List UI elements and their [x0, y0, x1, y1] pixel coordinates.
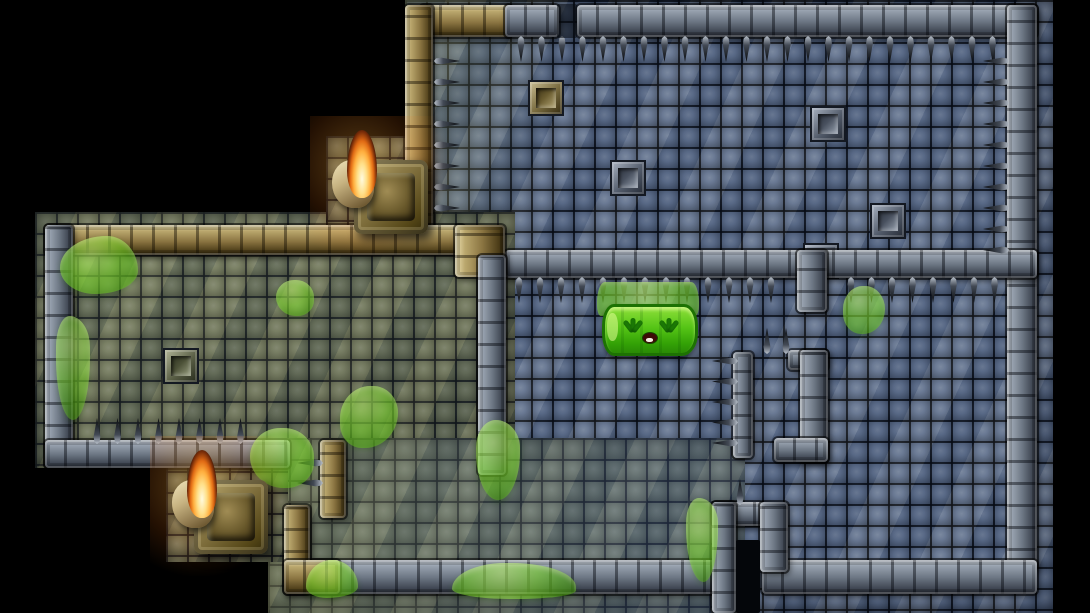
- dungeon-wall: [320, 440, 346, 518]
- spike-left-icon: [983, 77, 1009, 87]
- spike-strip-left: [983, 56, 1009, 257]
- spike-down-icon: [535, 277, 545, 303]
- torch-pedestal[interactable]: [172, 458, 268, 554]
- spike-left-icon: [983, 140, 1009, 150]
- spike-down-icon: [887, 277, 897, 303]
- spike-right-icon: [434, 77, 460, 87]
- spike-down-icon: [639, 36, 649, 62]
- floor-ornament-tile: [610, 160, 646, 196]
- spike-down-icon: [680, 36, 690, 62]
- torch-pedestal[interactable]: [332, 138, 428, 234]
- spike-down-icon: [660, 36, 670, 62]
- spike-down-icon: [990, 277, 1000, 303]
- spike-strip-down: [516, 36, 1000, 62]
- spike-left-icon: [712, 438, 738, 448]
- spike-down-icon: [783, 36, 793, 62]
- spike-down-icon: [762, 36, 772, 62]
- spike-up-icon: [92, 418, 102, 444]
- dungeon-wall: [797, 250, 827, 312]
- spike-down-icon: [906, 36, 916, 62]
- dungeon-wall: [760, 502, 788, 572]
- dungeon-wall: [577, 5, 1037, 37]
- spike-down-icon: [598, 36, 608, 62]
- spike-left-icon: [983, 182, 1009, 192]
- spike-down-icon: [537, 36, 547, 62]
- spike-up-icon: [781, 328, 791, 354]
- spike-down-icon: [803, 36, 813, 62]
- slime-eye-left: [620, 315, 646, 332]
- slime-body: [602, 304, 698, 356]
- spike-left-icon: [983, 119, 1009, 129]
- spike-down-icon: [908, 277, 918, 303]
- spike-down-icon: [928, 277, 938, 303]
- spike-down-icon: [577, 277, 587, 303]
- spike-left-icon: [983, 56, 1009, 66]
- dungeon-wall: [505, 250, 1037, 278]
- spike-down-icon: [556, 277, 566, 303]
- spike-down-icon: [949, 277, 959, 303]
- spike-left-icon: [983, 203, 1009, 213]
- dungeon-wall: [1007, 5, 1037, 570]
- spike-down-icon: [514, 277, 524, 303]
- dungeon-wall: [774, 438, 828, 462]
- floor-ornament-tile: [163, 348, 199, 384]
- spike-down-icon: [766, 277, 776, 303]
- spike-down-icon: [824, 36, 834, 62]
- spike-down-icon: [721, 36, 731, 62]
- spike-up-icon: [735, 479, 745, 505]
- spike-up-icon: [133, 418, 143, 444]
- spike-down-icon: [619, 36, 629, 62]
- spike-down-icon: [724, 277, 734, 303]
- spike-left-icon: [712, 418, 738, 428]
- spike-down-icon: [578, 36, 588, 62]
- floor-ornament-tile: [870, 203, 906, 239]
- spike-right-icon: [434, 56, 460, 66]
- spike-left-icon: [983, 224, 1009, 234]
- spike-left-icon: [712, 377, 738, 387]
- spike-left-icon: [983, 161, 1009, 171]
- dungeon-wall: [762, 560, 1037, 594]
- spike-left-icon: [983, 98, 1009, 108]
- spike-down-icon: [969, 277, 979, 303]
- spike-down-icon: [865, 36, 875, 62]
- slime-eye-right: [656, 315, 682, 332]
- spike-strip-up: [762, 328, 793, 354]
- spike-right-icon: [434, 98, 460, 108]
- spike-down-icon: [926, 36, 936, 62]
- spike-down-icon: [947, 36, 957, 62]
- spike-left-icon: [983, 245, 1009, 255]
- spike-down-icon: [701, 36, 711, 62]
- dungeon-wall: [505, 5, 559, 37]
- spike-down-icon: [557, 36, 567, 62]
- floor-ornament-tile: [528, 80, 564, 116]
- spike-up-icon: [762, 328, 772, 354]
- spike-left-icon: [712, 356, 738, 366]
- spike-down-icon: [885, 36, 895, 62]
- slime-mouth: [642, 332, 658, 344]
- spike-down-icon: [516, 36, 526, 62]
- spike-strip-left: [712, 356, 738, 450]
- spike-up-icon: [113, 418, 123, 444]
- spike-down-icon: [844, 36, 854, 62]
- slime-enemy[interactable]: [597, 282, 699, 350]
- spike-strip-up: [735, 479, 747, 505]
- doorway-passage[interactable]: [736, 540, 760, 613]
- game-viewport[interactable]: [0, 0, 1090, 613]
- goo-splat: [276, 280, 314, 316]
- spike-left-icon: [712, 397, 738, 407]
- spike-down-icon: [742, 36, 752, 62]
- spike-down-icon: [967, 36, 977, 62]
- dungeon-wall: [420, 5, 512, 37]
- floor-ornament-tile: [810, 106, 846, 142]
- spike-down-icon: [703, 277, 713, 303]
- spike-down-icon: [745, 277, 755, 303]
- doorway-passage[interactable]: [557, 4, 577, 38]
